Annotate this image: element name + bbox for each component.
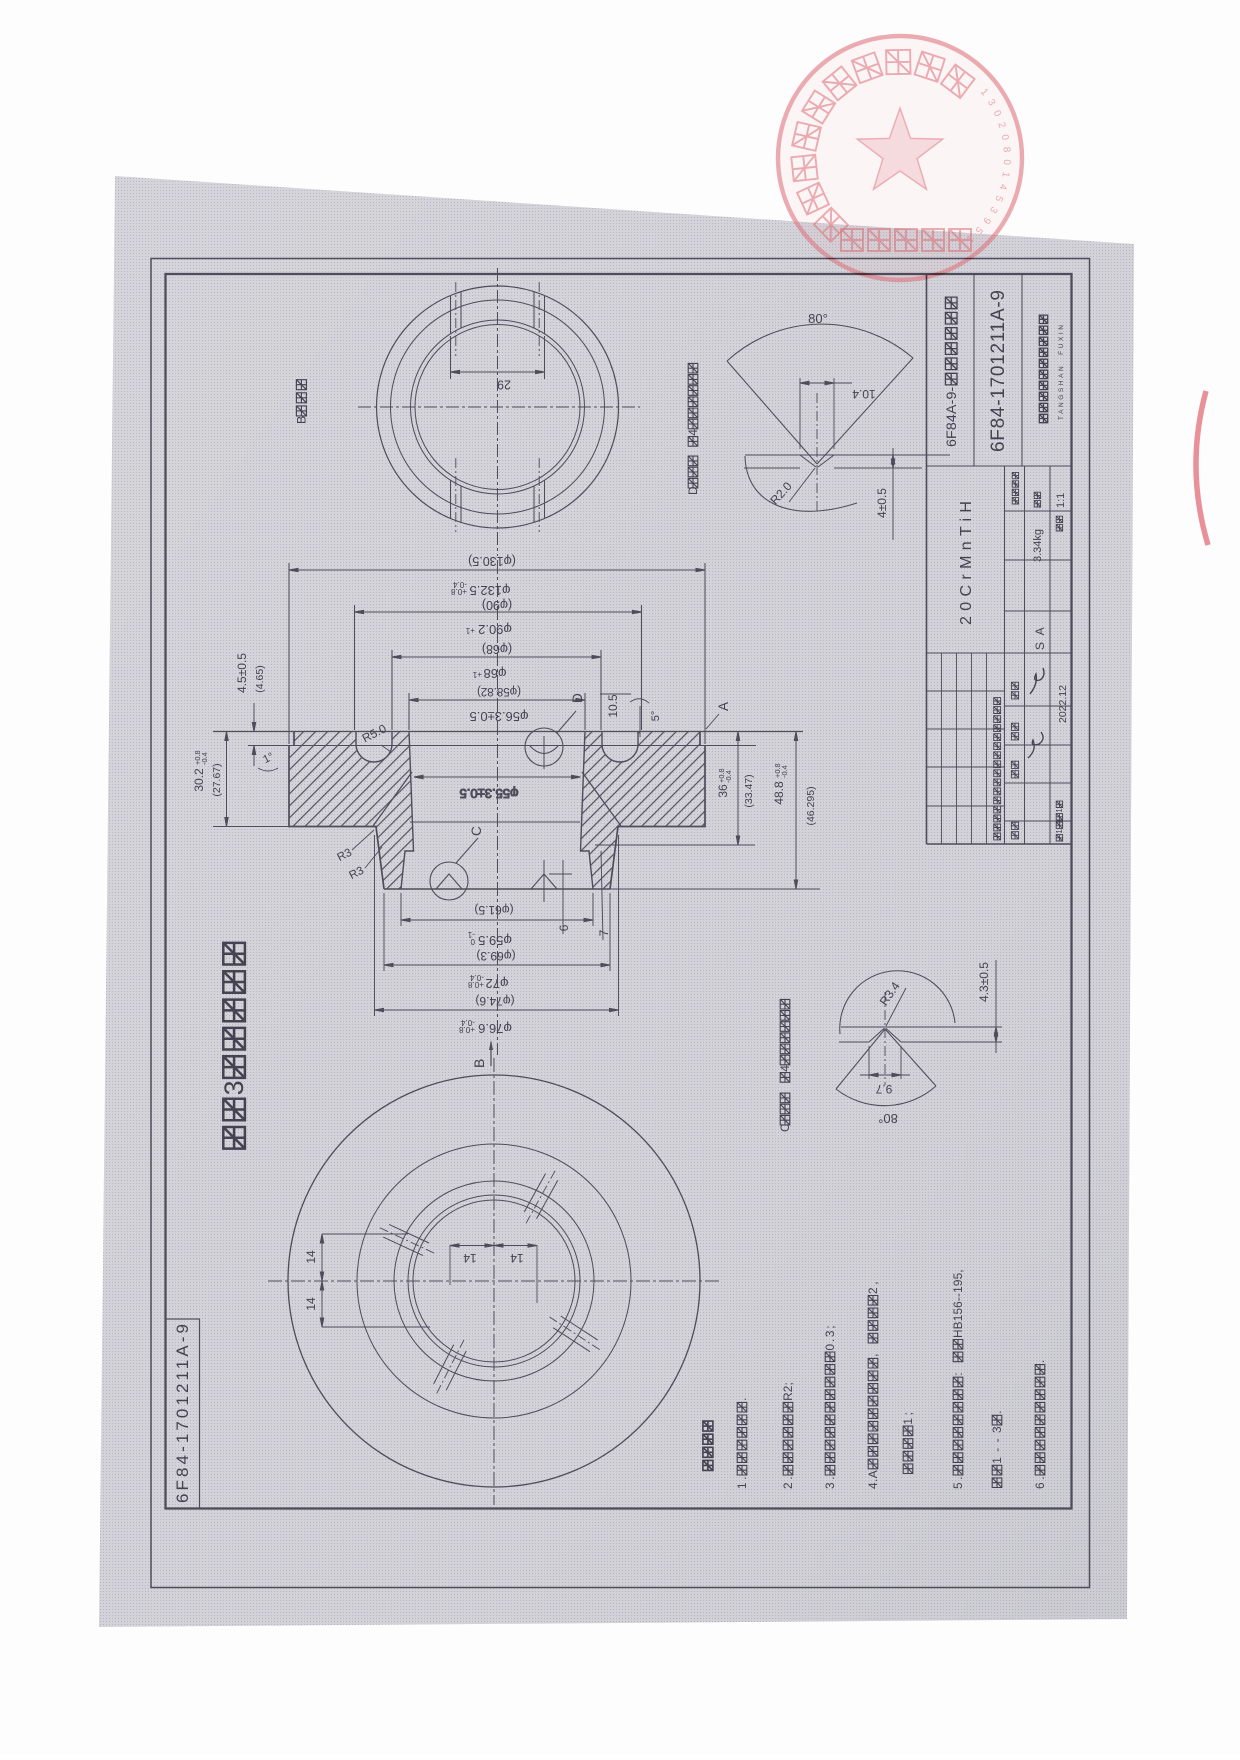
svg-text:4.3±0.5: 4.3±0.5 — [977, 962, 991, 1002]
svg-text:30.2: 30.2 — [192, 768, 206, 792]
svg-text:-1: -1 — [467, 930, 475, 939]
svg-text:9.7: 9.7 — [875, 1082, 892, 1096]
svg-text::: : — [951, 1372, 965, 1375]
svg-text:2.: 2. — [781, 1477, 795, 1490]
svg-text:0.3;: 0.3; — [823, 1326, 837, 1351]
svg-text:φ72: φ72 — [486, 976, 509, 991]
svg-text:48.8: 48.8 — [772, 781, 786, 805]
svg-text:3.: 3. — [823, 1477, 837, 1490]
svg-text:.: . — [735, 1398, 749, 1401]
svg-text:(φ68): (φ68) — [482, 642, 512, 656]
svg-text:4: 4 — [686, 429, 700, 436]
svg-text:φ90.2: φ90.2 — [478, 622, 512, 637]
svg-text:φ55.3±0.5: φ55.3±0.5 — [460, 786, 519, 801]
svg-text:HB156--195,: HB156--195, — [951, 1269, 965, 1338]
svg-text:1:1: 1:1 — [1055, 493, 1067, 508]
svg-text:80°: 80° — [878, 1111, 898, 1126]
svg-text:.: . — [1033, 1360, 1047, 1363]
svg-text:14: 14 — [510, 1251, 524, 1265]
svg-text:,: , — [866, 1354, 880, 1357]
svg-text:29: 29 — [497, 378, 511, 392]
svg-text:(46.295): (46.295) — [805, 786, 817, 825]
svg-text:6: 6 — [557, 924, 571, 931]
svg-text:R2;: R2; — [781, 1382, 795, 1401]
svg-text:1;: 1; — [901, 1412, 915, 1425]
svg-text:4±0.5: 4±0.5 — [875, 488, 889, 518]
svg-text:7: 7 — [597, 929, 611, 936]
svg-text:.: . — [990, 1411, 1004, 1414]
svg-text:-0.4: -0.4 — [724, 770, 733, 783]
svg-text:6F84-1701211A-9: 6F84-1701211A-9 — [988, 290, 1009, 452]
svg-text:φ59.5: φ59.5 — [478, 933, 512, 948]
svg-text:φ76.6: φ76.6 — [478, 1021, 512, 1036]
svg-text:14: 14 — [463, 1251, 477, 1265]
svg-text:36: 36 — [716, 784, 730, 798]
svg-text:6.: 6. — [1033, 1477, 1047, 1490]
svg-text:(φ61.5): (φ61.5) — [474, 903, 513, 917]
svg-text:(φ74.6): (φ74.6) — [475, 994, 514, 1008]
svg-text:4.5±0.5: 4.5±0.5 — [235, 653, 249, 693]
svg-text:S A: S A — [1033, 627, 1047, 650]
svg-text:3.34kg: 3.34kg — [1032, 529, 1044, 562]
svg-text:1: 1 — [1055, 808, 1064, 812]
svg-text:6F84A-9-: 6F84A-9- — [944, 386, 960, 447]
svg-text:80°: 80° — [808, 311, 828, 326]
svg-text:φ56.3±0.5: φ56.3±0.5 — [470, 709, 529, 724]
svg-text:(φ130.5): (φ130.5) — [468, 554, 516, 568]
svg-text:1.: 1. — [735, 1477, 749, 1490]
svg-text:+1: +1 — [472, 670, 482, 679]
svg-text:2,: 2, — [866, 1282, 880, 1295]
svg-text:14: 14 — [304, 1250, 318, 1264]
svg-text:6F84-1701211A-9: 6F84-1701211A-9 — [173, 1324, 192, 1503]
svg-text:B: B — [295, 416, 309, 424]
svg-text:+1: +1 — [465, 626, 475, 635]
svg-text:(φ58.82): (φ58.82) — [477, 685, 521, 697]
svg-text:φ132.5: φ132.5 — [470, 583, 511, 598]
svg-text:(4.65): (4.65) — [254, 665, 266, 692]
svg-text:1: 1 — [1055, 829, 1064, 833]
svg-text:φ68: φ68 — [484, 666, 507, 681]
svg-text:10.4: 10.4 — [852, 387, 876, 401]
svg-text:2022.12: 2022.12 — [1057, 685, 1069, 723]
svg-text:0: 0 — [1001, 159, 1012, 165]
svg-text:10.5: 10.5 — [606, 694, 620, 718]
svg-text:4.A: 4.A — [866, 1470, 880, 1489]
svg-text:(27.67): (27.67) — [211, 763, 223, 796]
svg-text:4: 4 — [778, 1065, 792, 1072]
svg-text:(φ69.3): (φ69.3) — [476, 949, 515, 963]
svg-text:-0.4: -0.4 — [200, 752, 209, 765]
svg-text:-0.4: -0.4 — [453, 580, 467, 589]
svg-text:5°: 5° — [650, 711, 662, 722]
svg-text:(φ90): (φ90) — [482, 598, 512, 612]
svg-text:B: B — [471, 1059, 487, 1068]
svg-text:20CrMnTiH: 20CrMnTiH — [958, 501, 975, 625]
svg-text:A: A — [716, 702, 731, 711]
svg-text:5.: 5. — [951, 1477, 965, 1490]
svg-text:-0.4: -0.4 — [780, 765, 789, 778]
svg-text:14: 14 — [304, 1297, 318, 1311]
svg-text:3: 3 — [219, 1081, 249, 1096]
svg-text:-0.4: -0.4 — [470, 973, 484, 982]
svg-text:C: C — [469, 826, 484, 836]
svg-text:(33.47): (33.47) — [743, 774, 755, 807]
svg-text:-0.4: -0.4 — [461, 1018, 475, 1027]
svg-text:D: D — [570, 693, 585, 703]
